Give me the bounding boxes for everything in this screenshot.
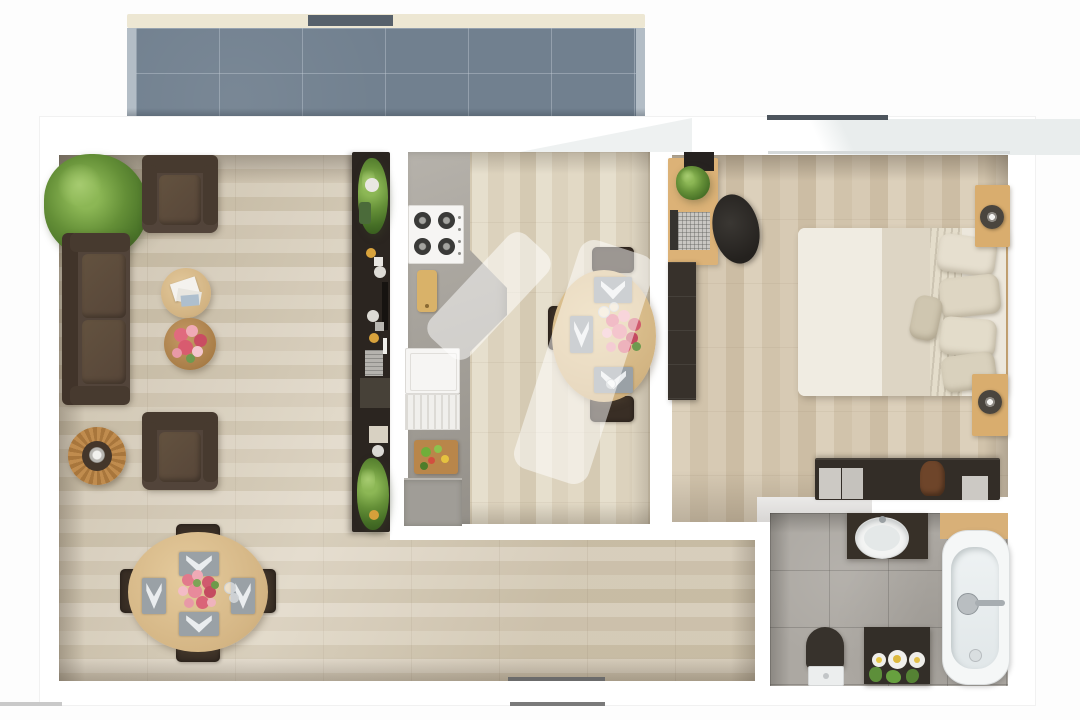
green-sprig [886, 670, 901, 683]
laptop-keyboard [678, 212, 710, 250]
green-jars [359, 202, 371, 224]
yellow-cup [369, 510, 379, 520]
bed [798, 228, 1006, 396]
floor-plan-stage [0, 0, 1080, 720]
beige-box [369, 426, 388, 443]
balcony-tile-floor [136, 28, 636, 118]
leather-bag [920, 461, 945, 496]
entry-door-line-inner [508, 677, 605, 681]
bedroom-window-line [767, 115, 888, 120]
media-shelf [352, 152, 390, 532]
desk-plant [676, 166, 710, 200]
exterior-shadow-line [0, 702, 62, 706]
pillow [938, 273, 1002, 319]
veggie-board [414, 440, 458, 474]
white-bowl [367, 310, 379, 322]
coffee-table-books [161, 268, 211, 318]
dark-box [360, 378, 390, 408]
daisy-vase [872, 653, 886, 667]
sideboard [815, 458, 1000, 500]
white-bottle [383, 338, 387, 354]
bath-cabinet [864, 627, 930, 684]
sink-faucet [879, 516, 886, 523]
laptop-screen [670, 210, 678, 250]
dining-table-bouquet [176, 568, 224, 614]
cutting-board [417, 270, 437, 312]
base-cabinet [404, 478, 462, 526]
gray-dish [375, 322, 384, 331]
coffee-table-flowers [164, 318, 216, 370]
rattan-side-table [68, 427, 126, 485]
dish-rack [405, 394, 460, 430]
armchair-bottom [142, 412, 218, 490]
daisy-vase [909, 652, 925, 668]
balcony [127, 14, 645, 118]
tray [842, 468, 863, 499]
sofa [62, 233, 130, 405]
balcony-frame-left [127, 28, 136, 118]
tub-drain [969, 649, 982, 662]
balcony-frame-right [636, 28, 645, 118]
blue-paper [181, 294, 200, 307]
yellow-cup [369, 333, 379, 343]
daisy-vase [888, 650, 907, 669]
magazines [365, 350, 383, 376]
faucet-arm [975, 600, 1005, 606]
wardrobe [668, 262, 696, 400]
toilet-tank [808, 666, 844, 686]
white-dish [374, 257, 383, 266]
placemat [179, 612, 219, 636]
green-sprig [869, 667, 882, 682]
sink [855, 517, 909, 559]
nightstand-lamp [978, 390, 1002, 414]
table-lamp [89, 447, 105, 463]
armchair-top [142, 155, 218, 233]
white-bowl [374, 266, 386, 278]
tray [962, 476, 988, 500]
balcony-railing-gap [308, 15, 393, 26]
placemat [142, 578, 166, 614]
white-bowl [372, 445, 384, 457]
entry-door-line-outer [510, 702, 605, 706]
gas-hob [408, 205, 464, 264]
toilet-lid [806, 627, 844, 669]
nightstand-lamp [980, 205, 1004, 229]
bathtub [942, 530, 1010, 685]
wine-glass [229, 593, 239, 603]
green-sprig [906, 669, 919, 683]
plate [365, 178, 379, 192]
tray [819, 468, 841, 499]
